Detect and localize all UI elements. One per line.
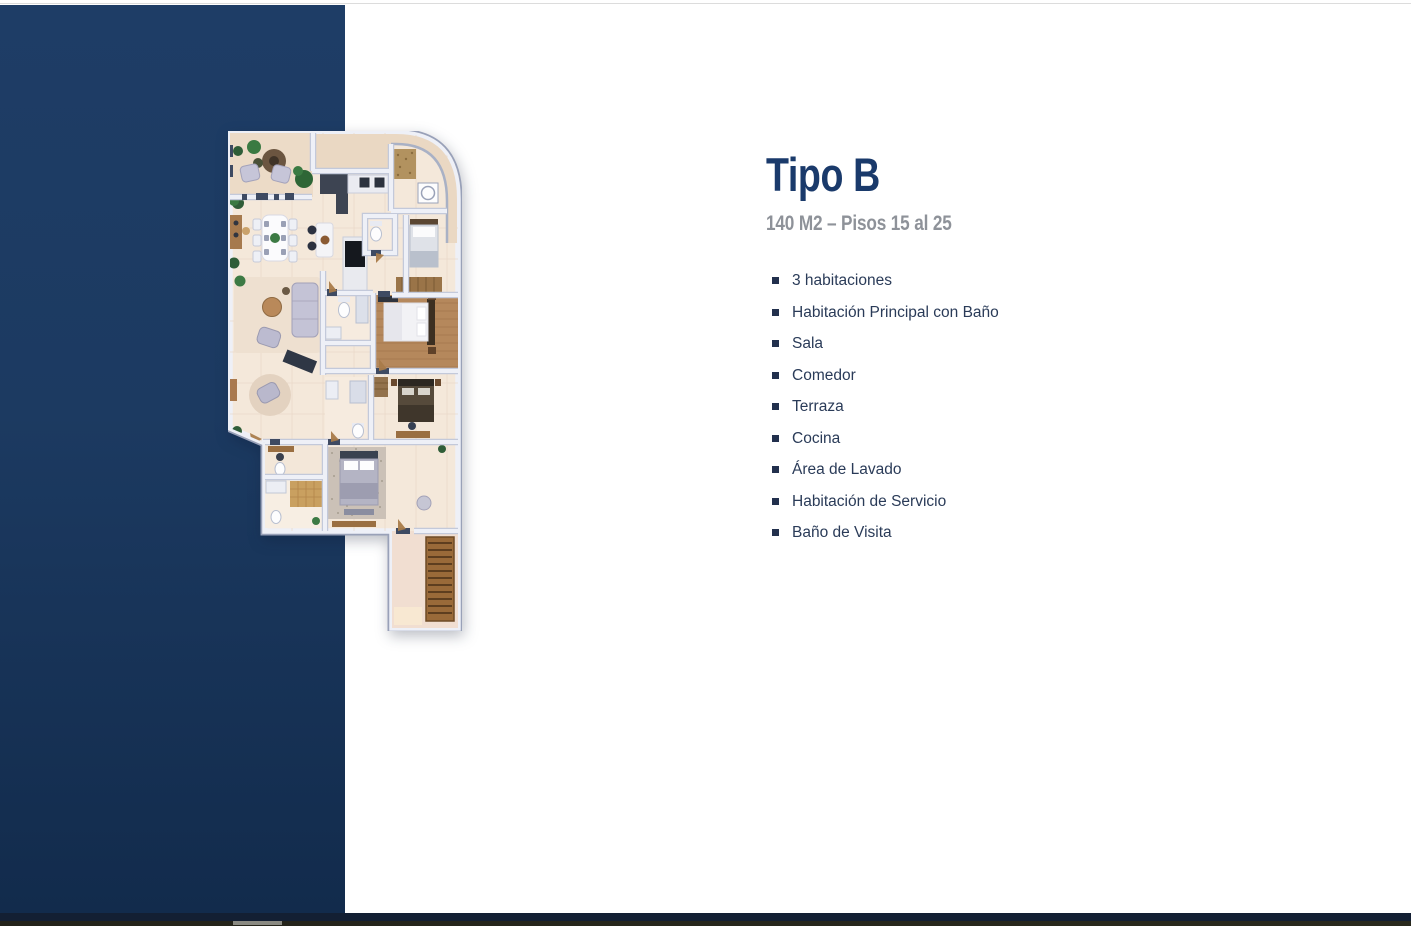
bullet-square-icon bbox=[772, 498, 779, 505]
feature-item: Área de Lavado bbox=[766, 461, 1326, 479]
bullet-square-icon bbox=[772, 529, 779, 536]
feature-label: Habitación de Servicio bbox=[792, 493, 946, 510]
bullet-square-icon bbox=[772, 309, 779, 316]
feature-label: Sala bbox=[792, 335, 823, 352]
feature-label: Habitación Principal con Baño bbox=[792, 304, 999, 321]
feature-label: Comedor bbox=[792, 367, 856, 384]
bullet-square-icon bbox=[772, 277, 779, 284]
unit-title: Tipo B bbox=[766, 153, 1214, 198]
bullet-square-icon bbox=[772, 372, 779, 379]
floor-plan-svg bbox=[228, 131, 462, 631]
bullet-square-icon bbox=[772, 340, 779, 347]
unit-subtitle: 140 M2 – Pisos 15 al 25 bbox=[766, 212, 1214, 236]
bullet-square-icon bbox=[772, 403, 779, 410]
feature-label: Terraza bbox=[792, 398, 844, 415]
feature-item: Habitación de Servicio bbox=[766, 493, 1326, 511]
floor-plan-image bbox=[228, 131, 462, 631]
bullet-square-icon bbox=[772, 466, 779, 473]
bullet-square-icon bbox=[772, 435, 779, 442]
feature-label: 3 habitaciones bbox=[792, 272, 892, 289]
feature-item: Sala bbox=[766, 335, 1326, 353]
feature-label: Área de Lavado bbox=[792, 461, 901, 478]
feature-label: Cocina bbox=[792, 430, 840, 447]
feature-item: Baño de Visita bbox=[766, 524, 1326, 542]
feature-item: Comedor bbox=[766, 367, 1326, 385]
taskbar-navy-band bbox=[0, 913, 1411, 921]
taskbar-olive-band bbox=[0, 921, 1411, 926]
feature-item: Habitación Principal con Baño bbox=[766, 304, 1326, 322]
unit-info-section: Tipo B 140 M2 – Pisos 15 al 25 3 habitac… bbox=[766, 153, 1326, 556]
feature-list: 3 habitaciones Habitación Principal con … bbox=[766, 272, 1326, 542]
feature-item: Terraza bbox=[766, 398, 1326, 416]
taskbar-sliver bbox=[0, 913, 1411, 926]
feature-item: Cocina bbox=[766, 430, 1326, 448]
taskbar-segment bbox=[233, 921, 282, 925]
feature-label: Baño de Visita bbox=[792, 524, 892, 541]
page-top-divider bbox=[0, 0, 1411, 4]
feature-item: 3 habitaciones bbox=[766, 272, 1326, 290]
